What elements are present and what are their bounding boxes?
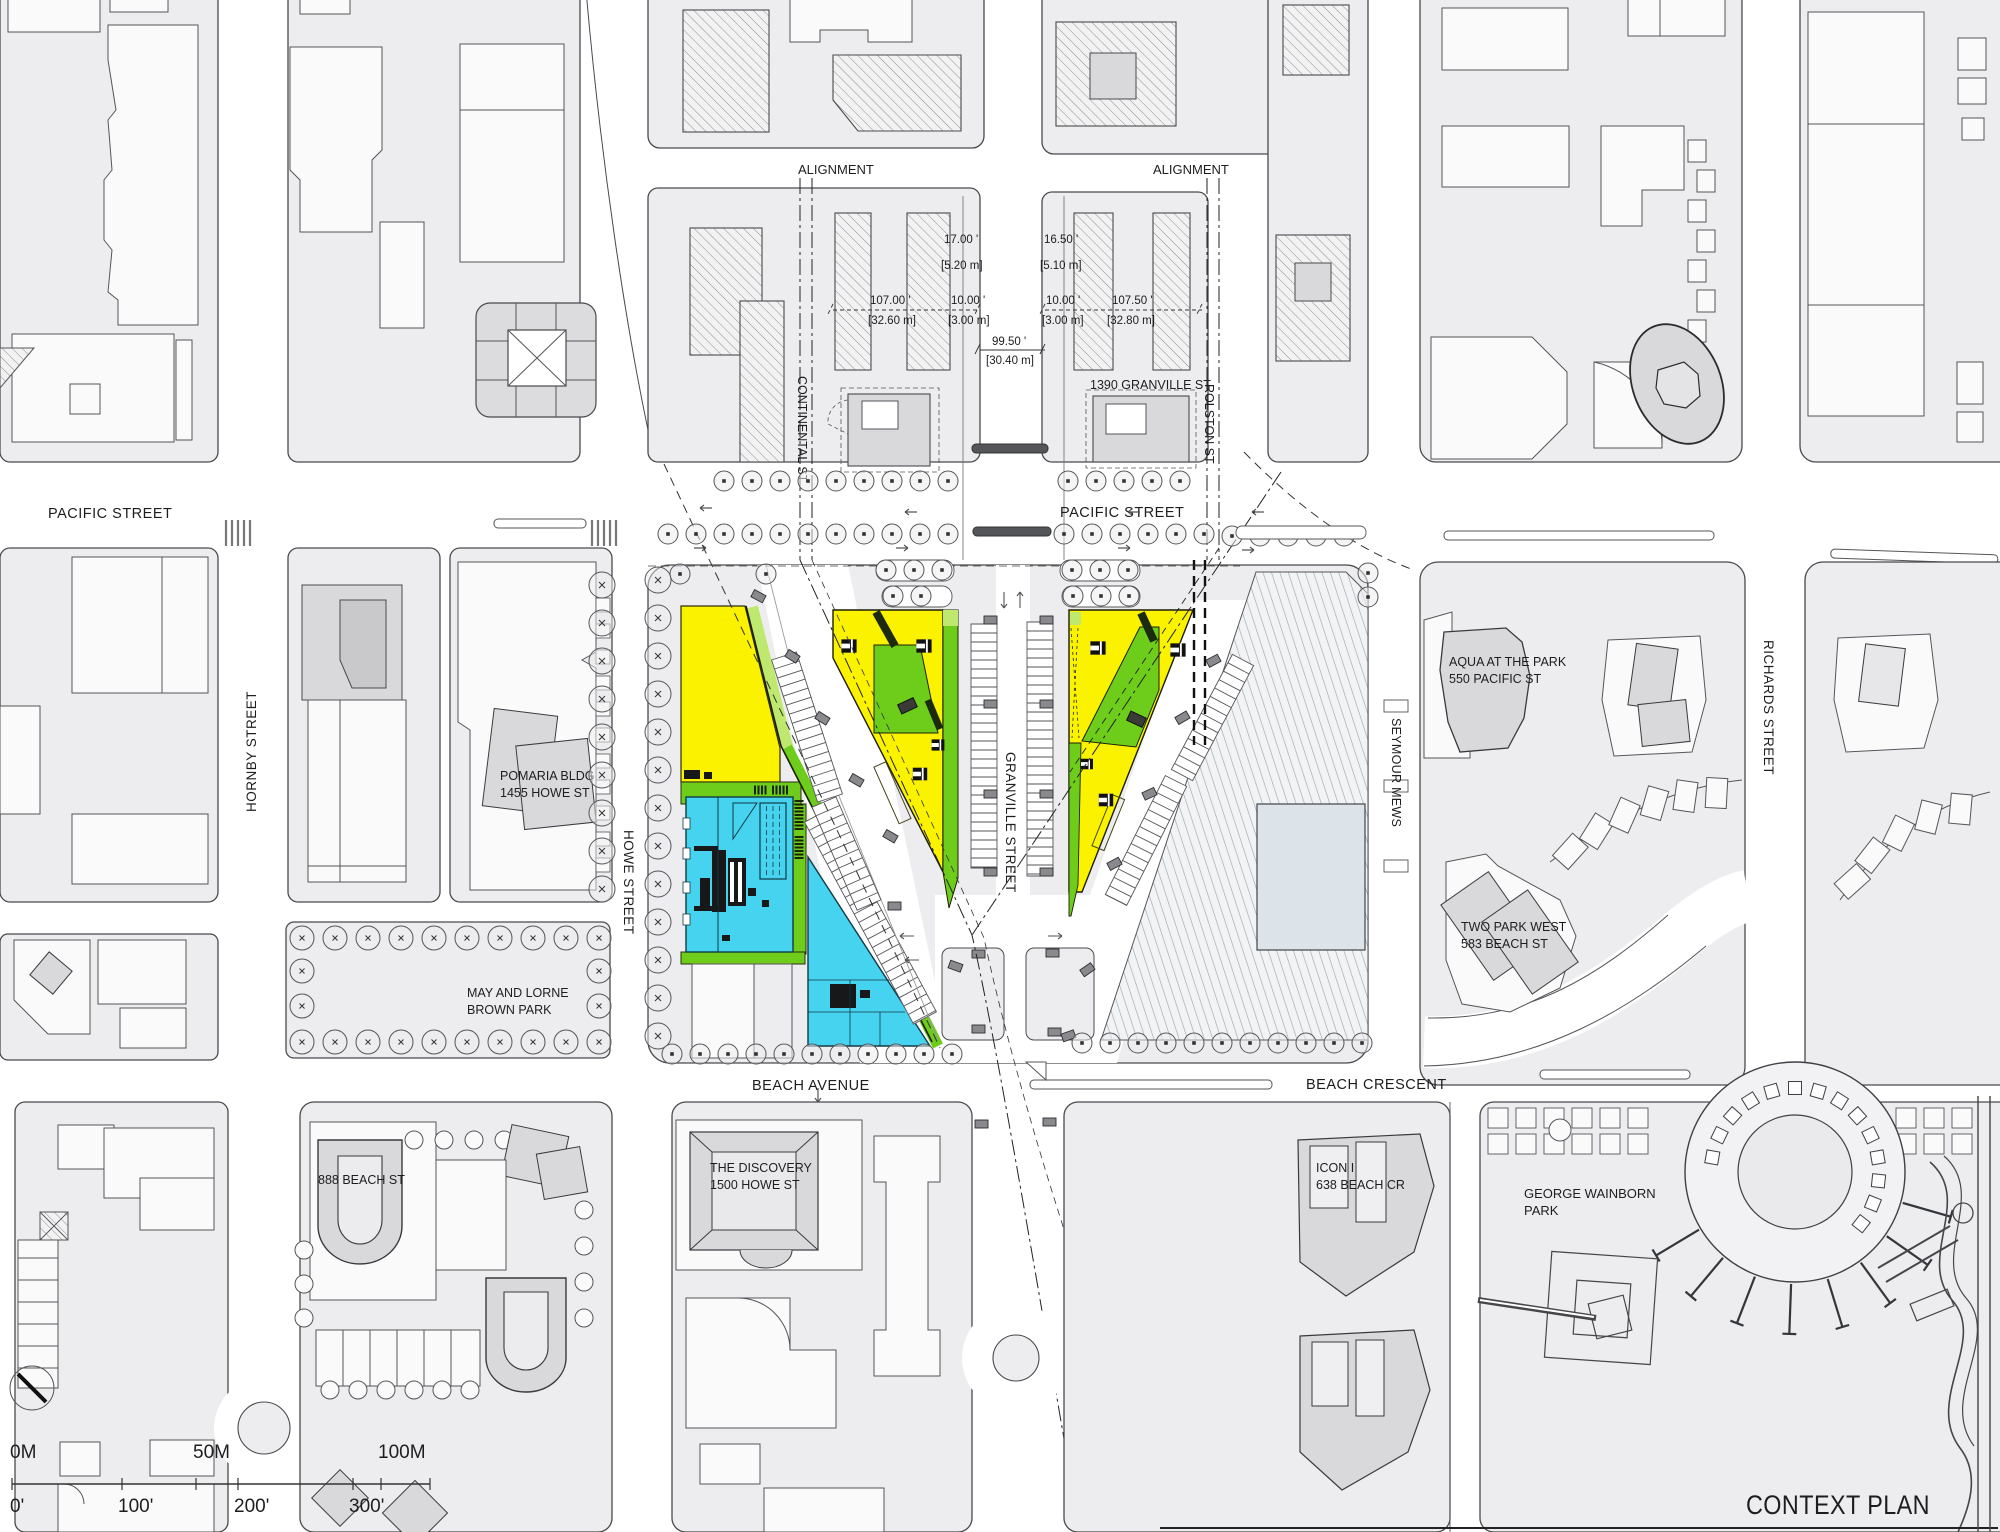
svg-text:1455 HOWE ST: 1455 HOWE ST: [500, 786, 590, 800]
svg-text:583 BEACH ST: 583 BEACH ST: [1461, 937, 1548, 951]
svg-text:HORNBY STREET: HORNBY STREET: [244, 691, 259, 812]
svg-text:ALIGNMENT: ALIGNMENT: [798, 162, 874, 177]
svg-text:550 PACIFIC ST: 550 PACIFIC ST: [1449, 672, 1542, 686]
svg-text:PACIFIC STREET: PACIFIC STREET: [48, 506, 172, 522]
svg-text:1390 GRANVILLE ST: 1390 GRANVILLE ST: [1090, 378, 1211, 392]
svg-text:107.50 ': 107.50 ': [1112, 295, 1153, 307]
svg-text:638 BEACH CR: 638 BEACH CR: [1316, 1178, 1405, 1192]
svg-text:1500 HOWE ST: 1500 HOWE ST: [710, 1178, 800, 1192]
svg-text:SEYMOUR MEWS: SEYMOUR MEWS: [1389, 718, 1403, 827]
svg-text:[32.60 m]: [32.60 m]: [868, 315, 916, 327]
svg-text:16.50 ': 16.50 ': [1044, 234, 1078, 246]
svg-text:THE DISCOVERY: THE DISCOVERY: [710, 1161, 813, 1175]
svg-text:ROLSTON ST: ROLSTON ST: [1202, 384, 1216, 464]
svg-text:AQUA AT THE PARK: AQUA AT THE PARK: [1449, 655, 1567, 669]
svg-text:[32.80 m]: [32.80 m]: [1107, 315, 1155, 327]
svg-text:MAY AND LORNE: MAY AND LORNE: [467, 986, 569, 1000]
svg-text:107.00 ': 107.00 ': [870, 295, 911, 307]
svg-text:300': 300': [349, 1496, 384, 1517]
svg-text:100M: 100M: [378, 1442, 426, 1463]
svg-text:ALIGNMENT: ALIGNMENT: [1153, 162, 1229, 177]
svg-text:0M: 0M: [10, 1442, 36, 1463]
svg-text:BEACH CRESCENT: BEACH CRESCENT: [1306, 1077, 1447, 1093]
svg-text:99.50 ': 99.50 ': [992, 336, 1026, 348]
svg-text:PARK: PARK: [1524, 1203, 1559, 1218]
svg-text:100': 100': [118, 1496, 153, 1517]
svg-text:17.00 ': 17.00 ': [944, 234, 978, 246]
svg-text:10.00 ': 10.00 ': [951, 295, 985, 307]
svg-text:[30.40 m]: [30.40 m]: [986, 355, 1034, 367]
svg-text:CONTEXT PLAN: CONTEXT PLAN: [1746, 1490, 1930, 1520]
svg-text:BEACH AVENUE: BEACH AVENUE: [752, 1078, 870, 1094]
svg-text:POMARIA BLDG: POMARIA BLDG: [500, 769, 594, 783]
svg-text:RICHARDS STREET: RICHARDS STREET: [1761, 640, 1776, 775]
svg-text:CONTINENTAL ST: CONTINENTAL ST: [795, 376, 809, 483]
svg-text:[3.00 m]: [3.00 m]: [1042, 315, 1084, 327]
svg-text:PACIFIC STREET: PACIFIC STREET: [1060, 505, 1184, 521]
svg-text:50M: 50M: [193, 1442, 230, 1463]
svg-text:10.00 ': 10.00 ': [1046, 295, 1080, 307]
svg-text:200': 200': [234, 1496, 269, 1517]
svg-text:0': 0': [10, 1496, 24, 1517]
svg-text:[5.20 m]: [5.20 m]: [941, 260, 983, 272]
svg-text:[3.00 m]: [3.00 m]: [948, 315, 990, 327]
svg-text:TWO PARK WEST: TWO PARK WEST: [1461, 920, 1567, 934]
svg-text:GRANVILLE STREET: GRANVILLE STREET: [1003, 752, 1018, 893]
svg-text:GEORGE WAINBORN: GEORGE WAINBORN: [1524, 1186, 1656, 1201]
svg-text:[5.10 m]: [5.10 m]: [1040, 260, 1082, 272]
svg-text:BROWN PARK: BROWN PARK: [467, 1003, 552, 1017]
svg-text:ICON I: ICON I: [1316, 1161, 1354, 1175]
svg-text:HOWE STREET: HOWE STREET: [621, 830, 636, 935]
svg-text:888 BEACH ST: 888 BEACH ST: [318, 1173, 405, 1187]
